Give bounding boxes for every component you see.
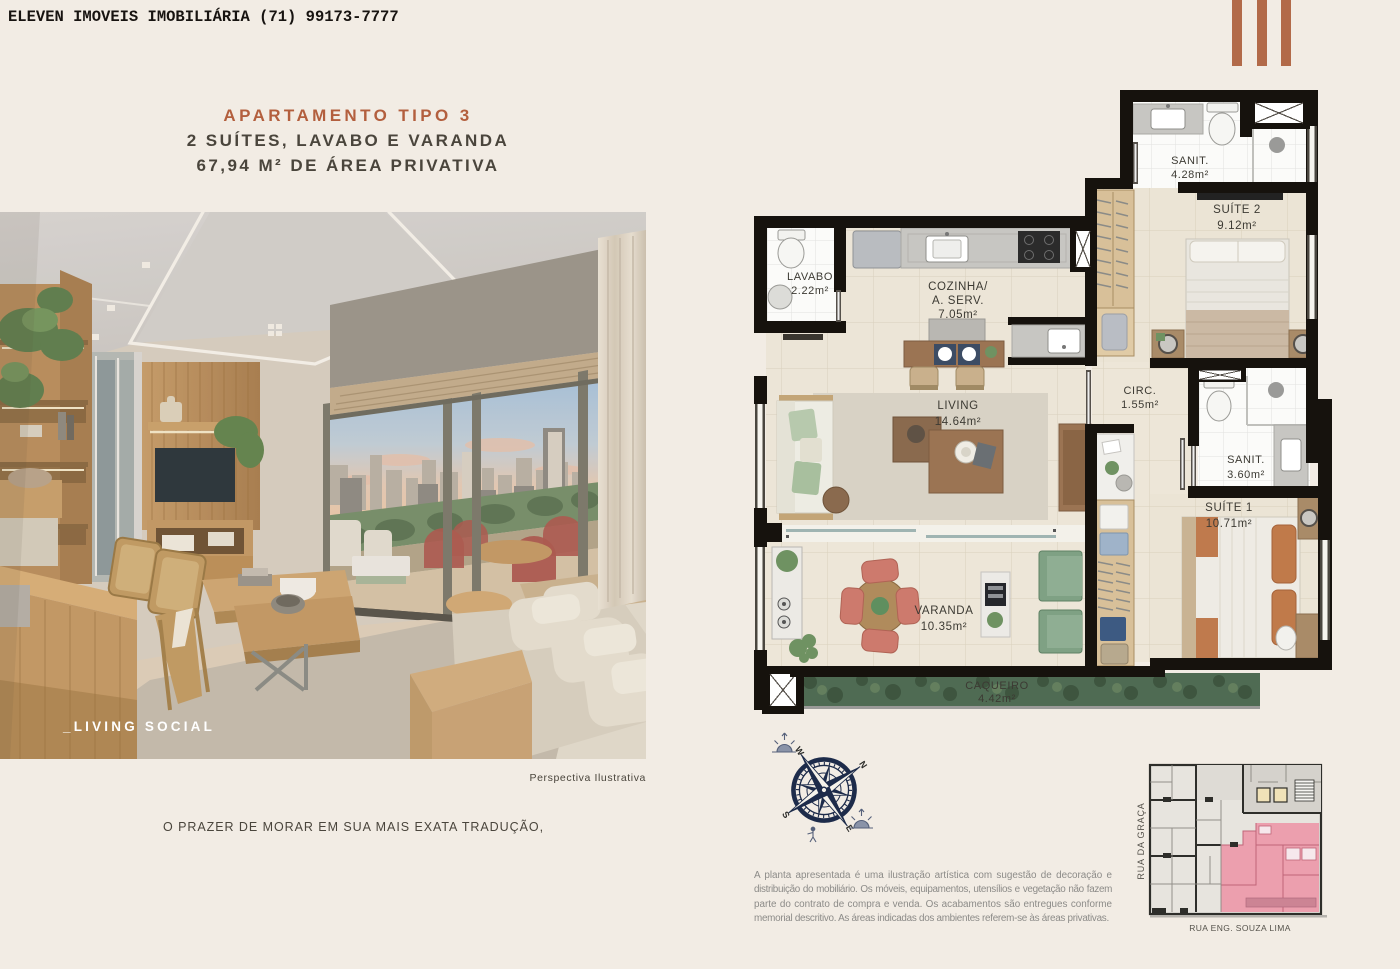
svg-text:LAVABO: LAVABO (787, 271, 833, 283)
svg-text:3.60m²: 3.60m² (1227, 469, 1265, 481)
svg-text:4.28m²: 4.28m² (1171, 169, 1209, 181)
svg-text:LIVING: LIVING (937, 400, 978, 412)
svg-text:7.05m²: 7.05m² (938, 309, 977, 321)
svg-text:10.35m²: 10.35m² (921, 621, 967, 633)
svg-text:SUÍTE 1: SUÍTE 1 (1205, 501, 1253, 514)
svg-text:14.64m²: 14.64m² (935, 416, 981, 428)
svg-text:9.12m²: 9.12m² (1217, 220, 1256, 232)
svg-text:SANIT.: SANIT. (1227, 454, 1265, 466)
svg-text:CIRC.: CIRC. (1124, 385, 1157, 397)
svg-text:4.42m²: 4.42m² (978, 693, 1016, 705)
svg-text:SANIT.: SANIT. (1171, 155, 1209, 167)
svg-text:A. SERV.: A. SERV. (932, 295, 984, 307)
svg-text:CAQUEIRO: CAQUEIRO (965, 680, 1028, 692)
svg-text:2.22m²: 2.22m² (791, 285, 829, 297)
svg-text:_LIVING SOCIAL: _LIVING SOCIAL (62, 719, 215, 734)
svg-text:SUÍTE 2: SUÍTE 2 (1213, 203, 1261, 216)
svg-text:N: N (857, 759, 869, 770)
svg-text:W: W (793, 745, 806, 758)
svg-text:COZINHA/: COZINHA/ (928, 281, 988, 293)
svg-text:S: S (780, 810, 792, 820)
svg-text:10.71m²: 10.71m² (1206, 518, 1252, 530)
svg-text:VARANDA: VARANDA (915, 605, 974, 617)
svg-text:1.55m²: 1.55m² (1121, 399, 1159, 411)
